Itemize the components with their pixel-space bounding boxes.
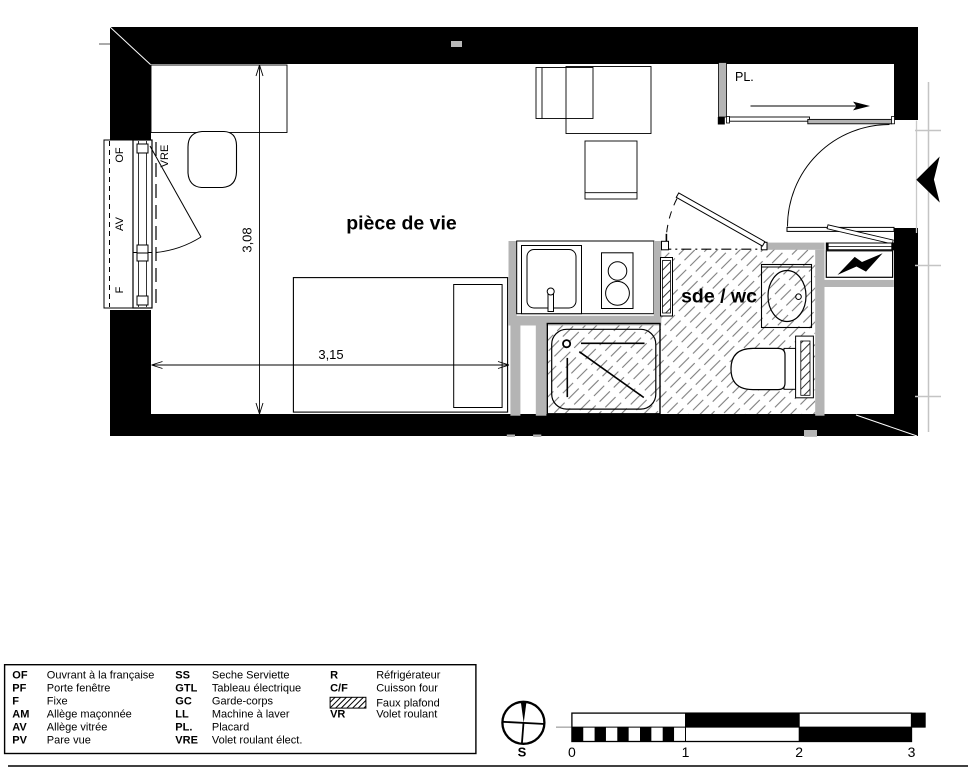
svg-text:Fixe: Fixe — [47, 696, 68, 708]
svg-text:AV: AV — [114, 216, 126, 231]
svg-text:PF: PF — [12, 683, 26, 695]
svg-text:SS: SS — [175, 670, 190, 682]
svg-text:Cuisson four: Cuisson four — [376, 683, 438, 695]
svg-text:C/F: C/F — [330, 683, 348, 695]
svg-text:Tableau électrique: Tableau électrique — [212, 683, 301, 695]
svg-text:3,15: 3,15 — [318, 347, 343, 362]
svg-text:GC: GC — [175, 696, 192, 708]
svg-text:Seche Serviette: Seche Serviette — [212, 670, 290, 682]
svg-text:Garde-corps: Garde-corps — [212, 696, 274, 708]
svg-text:Volet roulant élect.: Volet roulant élect. — [212, 735, 303, 747]
svg-text:AM: AM — [12, 709, 29, 721]
svg-text:PL.: PL. — [175, 722, 192, 734]
svg-text:VRE: VRE — [175, 735, 198, 747]
svg-text:sde / wc: sde / wc — [681, 286, 757, 308]
svg-text:S: S — [518, 745, 527, 760]
svg-text:0: 0 — [568, 744, 576, 760]
svg-text:F: F — [114, 286, 126, 293]
svg-text:Porte fenêtre: Porte fenêtre — [47, 683, 111, 695]
svg-text:pièce de vie: pièce de vie — [346, 213, 457, 235]
svg-text:PL.: PL. — [735, 70, 754, 84]
svg-text:1: 1 — [682, 744, 690, 760]
svg-text:LL: LL — [175, 709, 189, 721]
svg-text:VRE: VRE — [159, 145, 171, 168]
svg-text:Allège maçonnée: Allège maçonnée — [47, 709, 132, 721]
svg-text:Pare vue: Pare vue — [47, 735, 91, 747]
svg-text:GTL: GTL — [175, 683, 197, 695]
svg-text:AV: AV — [12, 722, 27, 734]
svg-text:Machine à laver: Machine à laver — [212, 709, 290, 721]
svg-text:OF: OF — [12, 670, 28, 682]
svg-text:Allège vitrée: Allège vitrée — [47, 722, 108, 734]
svg-text:PV: PV — [12, 735, 27, 747]
svg-text:OF: OF — [114, 147, 126, 163]
svg-text:Ouvrant à la française: Ouvrant à la française — [47, 670, 155, 682]
svg-text:R: R — [330, 670, 338, 682]
svg-text:VR: VR — [330, 709, 345, 721]
svg-text:Placard: Placard — [212, 722, 249, 734]
svg-text:F: F — [12, 696, 19, 708]
svg-text:3,08: 3,08 — [240, 227, 255, 252]
svg-text:Volet roulant: Volet roulant — [376, 709, 437, 721]
svg-text:Réfrigérateur: Réfrigérateur — [376, 670, 441, 682]
svg-text:2: 2 — [795, 744, 803, 760]
svg-text:3: 3 — [908, 744, 916, 760]
